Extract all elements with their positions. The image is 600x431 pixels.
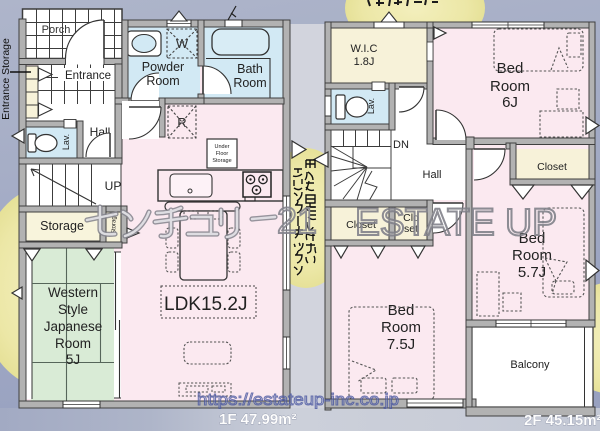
svg-text:W.I.C: W.I.C bbox=[351, 43, 378, 55]
svg-text:Powder: Powder bbox=[142, 60, 184, 74]
svg-text:2F 45.15m²: 2F 45.15m² bbox=[524, 412, 600, 429]
svg-text:21: 21 bbox=[277, 200, 317, 241]
svg-text:Under: Under bbox=[215, 144, 230, 150]
svg-text:6J: 6J bbox=[502, 94, 518, 111]
svg-text:Style: Style bbox=[58, 302, 88, 317]
svg-text:Room: Room bbox=[512, 247, 552, 264]
svg-text:ESTATE UP: ESTATE UP bbox=[355, 202, 557, 244]
svg-text:UP: UP bbox=[105, 179, 122, 193]
svg-text:Japanese: Japanese bbox=[44, 319, 103, 334]
svg-text:Hall: Hall bbox=[423, 169, 442, 181]
svg-text:Entrance: Entrance bbox=[65, 70, 111, 82]
svg-text:Room: Room bbox=[490, 78, 530, 95]
svg-text:1.8J: 1.8J bbox=[354, 56, 375, 68]
svg-text:https://estateup-inc.co.jp: https://estateup-inc.co.jp bbox=[197, 390, 399, 409]
svg-text:Bed: Bed bbox=[497, 60, 524, 77]
svg-text:5J: 5J bbox=[66, 352, 80, 367]
svg-text:Porch: Porch bbox=[42, 24, 71, 36]
svg-text:Room: Room bbox=[55, 336, 91, 351]
svg-text:W: W bbox=[176, 36, 189, 51]
svg-text:Bed: Bed bbox=[388, 302, 415, 319]
svg-text:Storage: Storage bbox=[40, 219, 84, 233]
svg-text:Room: Room bbox=[146, 74, 179, 88]
svg-text:Closet: Closet bbox=[537, 161, 567, 173]
svg-text:7.5J: 7.5J bbox=[387, 336, 415, 353]
svg-text:1F 47.99m²: 1F 47.99m² bbox=[219, 411, 297, 428]
svg-text:Room: Room bbox=[233, 76, 266, 90]
svg-text:Floor: Floor bbox=[216, 151, 229, 157]
svg-text:DN: DN bbox=[393, 139, 409, 151]
svg-text:Room: Room bbox=[381, 319, 421, 336]
svg-text:Balcony: Balcony bbox=[510, 359, 550, 371]
svg-text:Bath: Bath bbox=[237, 62, 263, 76]
svg-text:Western: Western bbox=[48, 285, 98, 300]
svg-text:R: R bbox=[177, 115, 186, 130]
svg-text:LDK15.2J: LDK15.2J bbox=[164, 294, 247, 315]
svg-text:Entrance Storage: Entrance Storage bbox=[0, 38, 12, 120]
svg-text:5.7J: 5.7J bbox=[518, 264, 546, 281]
svg-text:Lav.: Lav. bbox=[61, 134, 71, 150]
svg-text:Storage: Storage bbox=[212, 158, 231, 164]
